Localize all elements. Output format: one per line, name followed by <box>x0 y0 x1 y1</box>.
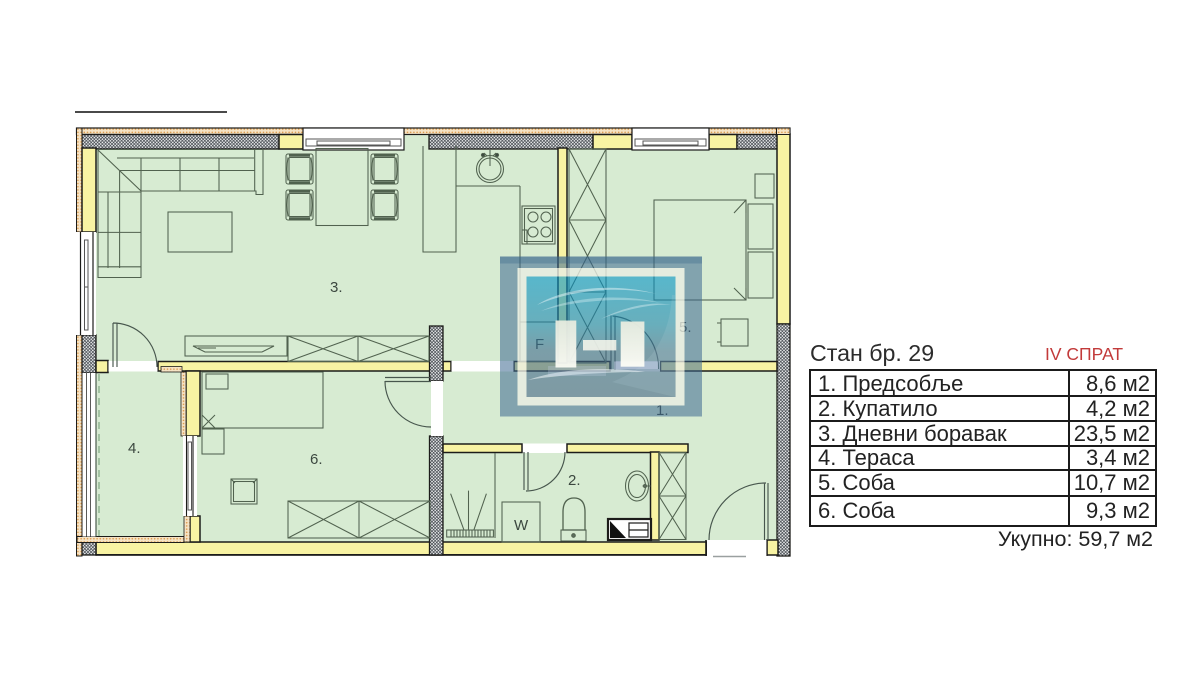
svg-text:3. Дневни боравак: 3. Дневни боравак <box>818 421 1007 446</box>
svg-text:5. Соба: 5. Соба <box>818 470 896 495</box>
svg-text:4,2 м2: 4,2 м2 <box>1086 396 1150 421</box>
svg-text:1. Предсобље: 1. Предсобље <box>818 371 963 396</box>
svg-text:3.: 3. <box>330 279 343 296</box>
svg-text:IV СПРАТ: IV СПРАТ <box>1045 344 1123 364</box>
svg-text:8,6 м2: 8,6 м2 <box>1086 371 1150 396</box>
svg-text:Укупно: 59,7 м2: Укупно: 59,7 м2 <box>998 527 1153 551</box>
svg-text:2. Купатило: 2. Купатило <box>818 396 938 421</box>
svg-text:4. Тераса: 4. Тераса <box>818 445 915 470</box>
svg-text:6.: 6. <box>310 451 323 468</box>
svg-text:23,5 м2: 23,5 м2 <box>1074 421 1150 446</box>
svg-text:6. Соба: 6. Соба <box>818 498 896 523</box>
svg-text:9,3 м2: 9,3 м2 <box>1086 498 1150 523</box>
svg-text:10,7 м2: 10,7 м2 <box>1074 470 1150 495</box>
svg-text:W: W <box>514 517 529 534</box>
svg-text:3,4 м2: 3,4 м2 <box>1086 445 1150 470</box>
svg-text:4.: 4. <box>128 440 141 457</box>
svg-text:Стан бр. 29: Стан бр. 29 <box>810 340 934 366</box>
svg-text:2.: 2. <box>568 472 581 489</box>
